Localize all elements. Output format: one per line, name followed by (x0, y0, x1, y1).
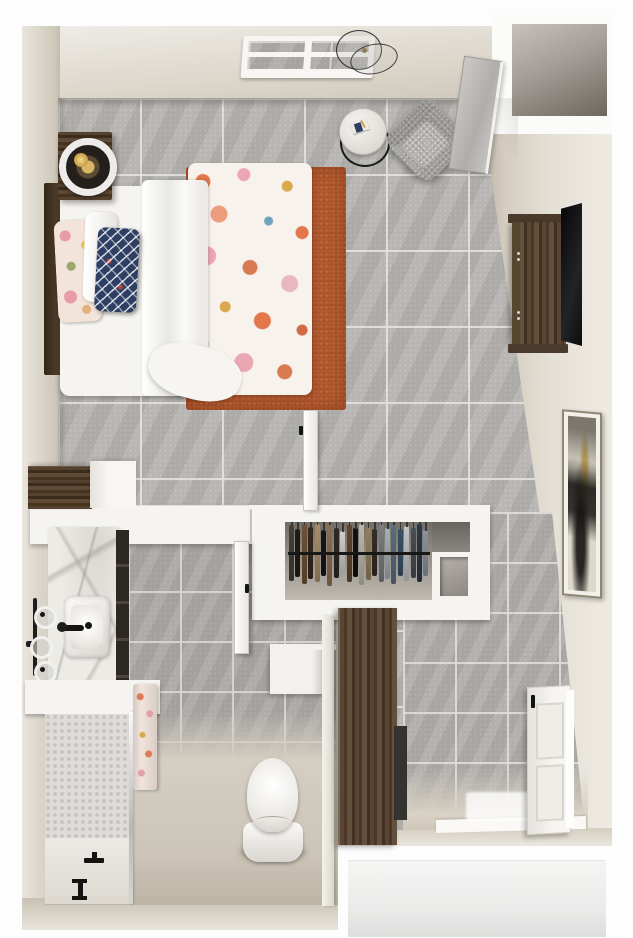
closet-door-open (303, 410, 318, 511)
closet-clothes (285, 522, 432, 600)
wall-tv (561, 203, 582, 346)
art-canvas (568, 416, 596, 592)
toilet-seat-seam (256, 816, 289, 825)
dresser-knob (517, 317, 520, 320)
hanging-garment (359, 524, 364, 585)
vanity-side-cabinet (116, 530, 129, 682)
door-panel-inset (536, 764, 564, 821)
patio-slab (348, 860, 606, 937)
shower-floor (45, 838, 132, 904)
dresser-body (512, 222, 566, 346)
dresser-side-face (512, 222, 520, 346)
framed-art (562, 409, 602, 598)
navy-pillow (94, 227, 140, 313)
faucet-base (57, 622, 67, 632)
dresser-knob (517, 252, 520, 255)
closet-rod (288, 552, 430, 555)
counter-block (90, 461, 136, 508)
bathroom-tile-fade (128, 712, 338, 758)
closet-niche (440, 557, 468, 596)
lamp-bulb-glow (74, 153, 88, 167)
towel-ring (30, 636, 53, 659)
sliding-barn-door (338, 608, 397, 845)
shower-valve (92, 852, 97, 859)
alcove-interior (512, 24, 607, 116)
dresser-knob (517, 258, 520, 261)
floor-plan-render: Studio apartment top-down 3D floor plan … (0, 0, 633, 938)
barn-door-track-shadow (394, 726, 407, 820)
towel-ring-knob (40, 667, 45, 672)
closet-shelf-shadow (432, 522, 470, 552)
floor-drain (72, 896, 87, 900)
sink-drain (85, 622, 92, 629)
shower-penny-tile (45, 714, 132, 840)
wall-corner-seam (478, 98, 518, 158)
shower-towel (133, 684, 157, 790)
paneled-door-handle (531, 695, 535, 708)
dresser-knob (517, 311, 520, 314)
table-lamp (59, 138, 117, 196)
bathroom-door-handle (245, 584, 249, 593)
towel-ring (34, 606, 57, 629)
low-cabinet (28, 466, 92, 509)
towel-ring-knob (40, 612, 45, 617)
dresser-bottom-cap (508, 344, 568, 353)
bathroom-partition-wall (322, 616, 334, 906)
entry-floor-mat (466, 792, 534, 821)
hanging-garment (327, 524, 332, 586)
ceiling-light-center (362, 48, 367, 53)
bathroom-door-open (234, 541, 249, 654)
closet-door-handle (299, 426, 303, 435)
door-edge-highlight (566, 690, 574, 828)
door-panel-inset (536, 702, 564, 759)
side-table-top (339, 108, 387, 155)
